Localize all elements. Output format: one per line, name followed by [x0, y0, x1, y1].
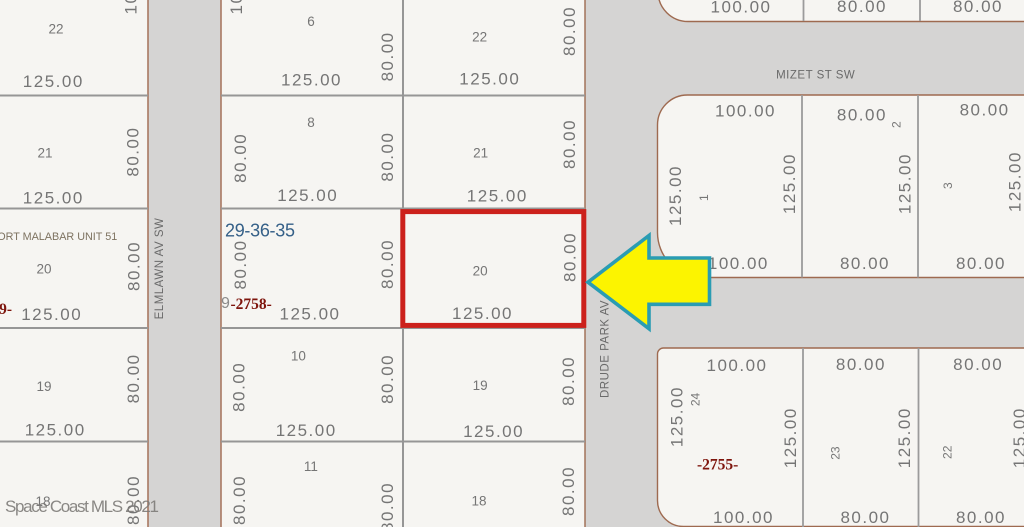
svg-text:-2755-: -2755-: [697, 457, 738, 474]
svg-text:125.00: 125.00: [23, 72, 84, 91]
svg-text:21: 21: [37, 146, 52, 161]
svg-text:125.00: 125.00: [459, 70, 520, 89]
svg-text:80.00: 80.00: [836, 355, 886, 374]
svg-text:80.00: 80.00: [560, 6, 579, 56]
svg-text:PORT MALABAR UNIT 51: PORT MALABAR UNIT 51: [0, 231, 117, 243]
svg-text:80.00: 80.00: [231, 133, 250, 183]
svg-text:18: 18: [471, 494, 486, 509]
svg-text:125.00: 125.00: [23, 189, 84, 208]
svg-text:125.00: 125.00: [463, 422, 524, 441]
svg-text:80.00: 80.00: [124, 127, 143, 177]
svg-text:DRUDE PARK AV: DRUDE PARK AV: [600, 300, 612, 398]
svg-text:80.00: 80.00: [378, 31, 397, 81]
svg-text:ELMLAWN AV SW: ELMLAWN AV SW: [154, 218, 166, 320]
svg-text:19: 19: [36, 379, 51, 394]
svg-text:80.00: 80.00: [953, 355, 1003, 374]
svg-text:100.00: 100.00: [122, 0, 141, 15]
svg-text:100.00: 100.00: [227, 0, 246, 15]
svg-text:125.00: 125.00: [21, 305, 82, 324]
svg-text:125.00: 125.00: [895, 153, 914, 214]
svg-text:2: 2: [890, 121, 904, 128]
svg-text:80.00: 80.00: [378, 239, 397, 289]
svg-text:125.00: 125.00: [1006, 151, 1024, 212]
svg-text:6: 6: [307, 14, 315, 29]
svg-text:80.00: 80.00: [378, 132, 397, 182]
svg-text:1: 1: [697, 194, 711, 201]
svg-text:125.00: 125.00: [281, 71, 342, 90]
svg-text:125.00: 125.00: [452, 304, 513, 323]
svg-text:100.00: 100.00: [711, 0, 772, 17]
svg-text:80.00: 80.00: [560, 232, 579, 282]
svg-text:80.00: 80.00: [124, 353, 143, 403]
svg-text:80.00: 80.00: [840, 254, 890, 273]
svg-text:10: 10: [291, 348, 306, 363]
svg-text:80.00: 80.00: [837, 0, 887, 16]
svg-text:125.00: 125.00: [781, 407, 800, 468]
svg-text:22: 22: [472, 30, 487, 45]
svg-text:22: 22: [48, 22, 63, 37]
svg-text:29-36-35: 29-36-35: [225, 221, 295, 241]
svg-text:3: 3: [941, 182, 955, 189]
svg-text:80.00: 80.00: [960, 100, 1010, 119]
svg-text:125.00: 125.00: [666, 165, 685, 226]
svg-text:20: 20: [36, 262, 51, 277]
svg-text:80.00: 80.00: [559, 466, 578, 516]
svg-text:80.00: 80.00: [378, 354, 397, 404]
svg-text:80.00: 80.00: [840, 508, 890, 527]
svg-text:80.00: 80.00: [560, 119, 579, 169]
svg-text:19: 19: [473, 378, 488, 393]
svg-text:80.00: 80.00: [230, 362, 249, 412]
svg-text:-2758-: -2758-: [231, 296, 272, 313]
svg-text:100.00: 100.00: [708, 254, 769, 273]
svg-text:125.00: 125.00: [667, 386, 686, 447]
svg-text:125.00: 125.00: [25, 420, 86, 439]
svg-text:8: 8: [307, 115, 315, 130]
svg-text:Space Coast MLS 2021: Space Coast MLS 2021: [5, 497, 158, 516]
svg-text:125.00: 125.00: [276, 421, 337, 440]
svg-text:11: 11: [304, 459, 318, 474]
svg-text:80.00: 80.00: [837, 106, 887, 125]
svg-text:80.00: 80.00: [953, 0, 1003, 16]
svg-text:100.00: 100.00: [713, 508, 774, 527]
svg-text:80.00: 80.00: [956, 254, 1006, 273]
svg-text:125.00: 125.00: [1010, 407, 1024, 468]
svg-text:80.00: 80.00: [230, 475, 249, 525]
svg-text:100.00: 100.00: [707, 356, 768, 375]
svg-text:125.00: 125.00: [277, 186, 338, 205]
svg-text:24: 24: [689, 393, 703, 407]
svg-text:MIZET ST SW: MIZET ST SW: [776, 70, 855, 82]
svg-text:80.00: 80.00: [231, 239, 250, 289]
svg-text:23: 23: [829, 446, 843, 460]
svg-text:125.00: 125.00: [895, 407, 914, 468]
svg-text:-2759-: -2759-: [0, 301, 12, 318]
svg-text:100.00: 100.00: [715, 102, 776, 121]
svg-text:80.00: 80.00: [559, 356, 578, 406]
svg-text:125.00: 125.00: [780, 153, 799, 214]
svg-text:9: 9: [221, 295, 230, 312]
svg-text:125.00: 125.00: [280, 305, 341, 324]
svg-text:125.00: 125.00: [467, 186, 528, 205]
svg-text:21: 21: [473, 145, 488, 160]
svg-text:22: 22: [940, 445, 954, 459]
svg-text:80.00: 80.00: [956, 508, 1006, 527]
svg-text:20: 20: [473, 263, 488, 278]
svg-text:80.00: 80.00: [378, 482, 397, 527]
svg-text:80.00: 80.00: [125, 241, 144, 291]
